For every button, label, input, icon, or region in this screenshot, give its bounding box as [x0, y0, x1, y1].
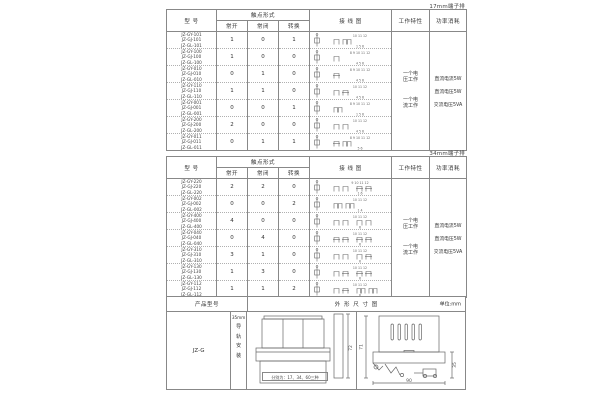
svg-text:10 11 12: 10 11 12 — [353, 85, 367, 89]
model-cell: JZ-GY-110 JZ-GJ-110 JZ-GL-110 — [167, 83, 217, 100]
power-item: 交流电压5VA — [434, 101, 463, 108]
svg-text:8 9 10 11 12: 8 9 10 11 12 — [350, 68, 370, 72]
wiring-diagram-cell: 9 10 11 121 6 — [310, 179, 392, 196]
power-consumption-cell: 直流电流5W直流电压5W交流电压5VA — [430, 32, 467, 151]
no-count-cell: 2 — [217, 117, 248, 134]
model-cell: JZ-GY-130 JZ-GJ-130 JZ-GL-130 — [167, 264, 217, 281]
wiring-diagram: 10 11 126 — [310, 264, 390, 280]
table-row: JZ-GY-220 JZ-GJ-220 JZ-GL-2202209 10 11 … — [167, 179, 467, 196]
working-column-header: 工作特性 — [392, 157, 430, 179]
vent-slot — [391, 324, 393, 340]
page: { "colors": { "line": "#888888", "diagra… — [0, 0, 600, 400]
power-item: 直流电压5W — [435, 88, 462, 95]
co-count-cell: 0 — [279, 179, 310, 196]
outline-header: 外 形 尺 寸 图 单位:mm — [248, 297, 465, 311]
side-view-diagram: 71 90 35 — [357, 312, 465, 388]
nc-count-cell: 0 — [248, 100, 279, 117]
nc-count-cell: 4 — [248, 230, 279, 247]
wiring-diagram-cell: 10 11 126 — [310, 264, 392, 281]
vent-slot — [412, 324, 414, 340]
wiring-diagram-cell: 10 11 126 — [310, 213, 392, 230]
wiring-diagram-cell: 10 11 124 5 6 — [310, 117, 392, 134]
nc-count-cell: 0 — [248, 213, 279, 230]
wiring-diagram-cell: 10 11 126 — [310, 247, 392, 264]
co-count-cell: 1 — [279, 100, 310, 117]
wiring-diagram-cell: 8 9 10 11 125 6 — [310, 134, 392, 151]
wiring-diagram: 10 11 124 5 6 — [310, 117, 390, 133]
spec-table-17mm: 型 号 触点形式 接 线 图 工作特性 功率消耗 常开 常闭 转换 JZ-GY-… — [166, 9, 467, 151]
contact-form-header: 触点形式 — [217, 10, 310, 21]
model-cell: JZ-GY-310 JZ-GJ-310 JZ-GL-310 — [167, 247, 217, 264]
product-table-header: 产品型号 外 形 尺 寸 图 单位:mm — [167, 297, 465, 312]
wiring-diagram: 8 9 10 11 121 5 6 — [310, 100, 390, 116]
co-count-cell: 0 — [279, 213, 310, 230]
svg-text:10 11 12: 10 11 12 — [353, 198, 367, 202]
wiring-diagram-cell: 10 11 124 5 6 — [310, 83, 392, 100]
svg-text:10 11 12: 10 11 12 — [353, 215, 367, 219]
power-item: 交流电压5VA — [434, 248, 463, 255]
side-base-bar — [373, 352, 445, 363]
co-count-cell: 1 — [279, 32, 310, 49]
no-count-cell: 4 — [217, 213, 248, 230]
nc-count-cell: 0 — [248, 49, 279, 66]
wiring-diagram: 10 11 124 5 6 — [310, 83, 390, 99]
wiring-diagram-cell: 8 9 10 11 121 5 6 — [310, 100, 392, 117]
side-view-cell: 71 90 35 — [357, 312, 465, 389]
side-main-body — [379, 316, 439, 352]
co-count-cell: 0 — [279, 230, 310, 247]
front-height-dim: 72 — [348, 345, 354, 351]
nc-count-cell: 1 — [248, 66, 279, 83]
power-item: 直流电流5W — [435, 75, 462, 82]
svg-text:8 9 10 11 12: 8 9 10 11 12 — [350, 51, 370, 55]
model-cell: JZ-GY-002 JZ-GJ-002 JZ-GL-002 — [167, 196, 217, 213]
unit-label: 单位:mm — [440, 301, 461, 308]
product-dimension-table: 产品型号 外 形 尺 寸 图 单位:mm JZ-G 35mm 导轨安装 — [166, 296, 466, 390]
wiring-diagram: 10 11 126 — [310, 230, 390, 246]
working-characteristic-cell: 一个电压工作一个电流工作 — [392, 32, 430, 151]
model-cell: JZ-GY-101 JZ-GJ-101 JZ-GL-101 — [167, 32, 217, 49]
co-count-cell: 0 — [279, 247, 310, 264]
model-cell: JZ-GY-011 JZ-GJ-011 JZ-GL-011 — [167, 134, 217, 151]
working-item: 一个电流工作 — [402, 98, 419, 110]
no-count-cell: 0 — [217, 230, 248, 247]
no-count-cell: 1 — [217, 264, 248, 281]
front-top-lip — [264, 316, 322, 319]
wiring-diagram: 10 11 121 5 6 — [310, 32, 390, 48]
model-cell: JZ-GY-010 JZ-GJ-010 JZ-GL-010 — [167, 66, 217, 83]
wiring-column-header: 接 线 图 — [310, 157, 392, 179]
co-column-header: 转换 — [279, 168, 310, 179]
power-consumption-cell: 直流电流5W直流电压5W交流电压5VA — [430, 179, 467, 298]
no-column-header: 常开 — [217, 21, 248, 32]
svg-text:10 11 12: 10 11 12 — [353, 232, 367, 236]
svg-text:6: 6 — [359, 260, 361, 263]
model-cell: JZ-GY-400 JZ-GJ-400 JZ-GL-400 — [167, 213, 217, 230]
model-cell: JZ-GY-112 JZ-GJ-112 JZ-GL-112 — [167, 281, 217, 298]
nc-count-cell: 2 — [248, 179, 279, 196]
power-column-header: 功率消耗 — [430, 10, 467, 32]
side-tab — [404, 351, 414, 353]
outline-header-label: 外 形 尺 寸 图 — [335, 300, 379, 308]
co-column-header: 转换 — [279, 21, 310, 32]
nc-count-cell: 0 — [248, 32, 279, 49]
nc-column-header: 常闭 — [248, 21, 279, 32]
front-view-cell: 72 分别为：17、34、60三种 — [247, 312, 357, 389]
working-items: 一个电压工作一个电流工作 — [392, 219, 429, 256]
wiring-diagram-cell: 10 11 121 5 6 — [310, 32, 392, 49]
model-cell: JZ-GY-040 JZ-GJ-040 JZ-GL-040 — [167, 230, 217, 247]
svg-text:4 5 6: 4 5 6 — [356, 96, 364, 99]
no-column-header: 常开 — [217, 168, 248, 179]
svg-text:10 11 12: 10 11 12 — [353, 34, 367, 38]
co-count-cell: 2 — [279, 281, 310, 298]
co-count-cell: 0 — [279, 117, 310, 134]
power-column-header: 功率消耗 — [430, 157, 467, 179]
wiring-diagram: 8 9 10 11 124 5 6 — [310, 49, 390, 65]
rail-size-label: 35mm — [231, 315, 246, 320]
wiring-diagram-cell: 8 9 10 11 124 5 6 — [310, 49, 392, 66]
side-width-dim: 90 — [406, 378, 412, 384]
no-count-cell: 0 — [217, 100, 248, 117]
model-cell: JZ-GY-100 JZ-GJ-100 JZ-GL-100 — [167, 49, 217, 66]
power-items: 直流电流5W直流电压5W交流电压5VA — [430, 75, 466, 108]
co-count-cell: 0 — [279, 264, 310, 281]
wiring-diagram: 8 9 10 11 124 5 6 — [310, 66, 390, 82]
svg-text:1 5 6: 1 5 6 — [356, 45, 364, 48]
svg-text:10 11 12: 10 11 12 — [353, 119, 367, 123]
side-height-dim: 71 — [359, 344, 365, 350]
no-count-cell: 0 — [217, 196, 248, 213]
svg-text:6: 6 — [359, 226, 361, 229]
no-count-cell: 2 — [217, 179, 248, 196]
wiring-diagram: 10 11 126 — [310, 247, 390, 263]
nc-count-cell: 1 — [248, 281, 279, 298]
working-item: 一个电压工作 — [402, 72, 419, 84]
no-count-cell: 0 — [217, 66, 248, 83]
svg-text:10 11 12: 10 11 12 — [353, 283, 367, 287]
front-main-body — [262, 319, 324, 348]
svg-text:4 5 6: 4 5 6 — [356, 79, 364, 82]
svg-text:6: 6 — [359, 243, 361, 246]
working-column-header: 工作特性 — [392, 10, 430, 32]
wiring-diagram: 8 9 10 11 125 6 — [310, 134, 390, 150]
product-model-header: 产品型号 — [167, 297, 248, 311]
svg-text:4 5 6: 4 5 6 — [356, 62, 364, 65]
power-item: 直流电压5W — [435, 235, 462, 242]
front-caption: 分别为：17、34、60三种 — [262, 372, 328, 381]
product-table-body: JZ-G 35mm 导轨安装 72 分别为：17、34 — [167, 312, 465, 389]
working-items: 一个电压工作一个电流工作 — [392, 72, 429, 109]
working-characteristic-cell: 一个电压工作一个电流工作 — [392, 179, 430, 298]
side-clamp-dim: 35 — [452, 362, 458, 368]
wiring-diagram-cell: 10 11 126 — [310, 230, 392, 247]
wiring-diagram: 10 11 126 — [310, 213, 390, 229]
model-cell: JZ-GY-001 JZ-GJ-001 JZ-GL-001 — [167, 100, 217, 117]
svg-text:10 11 12: 10 11 12 — [353, 266, 367, 270]
no-count-cell: 0 — [217, 134, 248, 151]
power-item: 直流电流5W — [435, 222, 462, 229]
svg-text:10 11 12: 10 11 12 — [353, 249, 367, 253]
vent-slot — [398, 324, 400, 340]
co-count-cell: 1 — [279, 134, 310, 151]
wiring-diagram-cell: 10 11 126 — [310, 281, 392, 298]
front-flange — [256, 348, 330, 361]
co-count-cell: 0 — [279, 49, 310, 66]
no-count-cell: 1 — [217, 32, 248, 49]
document-content: 17mm端子排 型 号 触点形式 接 线 图 工作特性 功率消耗 常开 常闭 转… — [166, 0, 466, 400]
wiring-diagram: 10 11 121 4 — [310, 196, 390, 212]
no-count-cell: 1 — [217, 49, 248, 66]
table-row: JZ-GY-101 JZ-GJ-101 JZ-GL-10110110 11 12… — [167, 32, 467, 49]
working-item: 一个电压工作 — [402, 219, 419, 231]
no-count-cell: 3 — [217, 247, 248, 264]
svg-text:6: 6 — [359, 277, 361, 280]
nc-count-cell: 0 — [248, 117, 279, 134]
rail-screw — [400, 373, 403, 376]
co-count-cell: 2 — [279, 196, 310, 213]
svg-text:9 10 11 12: 9 10 11 12 — [351, 181, 368, 185]
nc-column-header: 常闭 — [248, 168, 279, 179]
mount-type: 35mm 导轨安装 — [231, 312, 247, 389]
model-column-header: 型 号 — [167, 157, 217, 179]
svg-text:1 4: 1 4 — [357, 209, 362, 212]
vent-slot — [405, 324, 407, 340]
nc-count-cell: 0 — [248, 196, 279, 213]
power-items: 直流电流5W直流电压5W交流电压5VA — [430, 222, 466, 255]
wiring-column-header: 接 线 图 — [310, 10, 392, 32]
svg-text:1 6: 1 6 — [357, 192, 362, 195]
wiring-diagram-cell: 8 9 10 11 124 5 6 — [310, 66, 392, 83]
wiring-diagram: 10 11 126 — [310, 281, 390, 297]
svg-text:1 5 6: 1 5 6 — [356, 113, 364, 116]
wiring-diagram: 9 10 11 121 6 — [310, 179, 390, 195]
svg-text:5 6: 5 6 — [357, 147, 362, 150]
model-column-header: 型 号 — [167, 10, 217, 32]
vent-slot — [419, 324, 421, 340]
nc-count-cell: 1 — [248, 83, 279, 100]
model-cell: JZ-GY-200 JZ-GJ-200 JZ-GL-200 — [167, 117, 217, 134]
nc-count-cell: 1 — [248, 134, 279, 151]
no-count-cell: 1 — [217, 83, 248, 100]
rail-squiggle — [385, 364, 400, 375]
wiring-diagram-cell: 10 11 121 4 — [310, 196, 392, 213]
nc-count-cell: 3 — [248, 264, 279, 281]
no-count-cell: 1 — [217, 281, 248, 298]
product-model-value: JZ-G — [167, 312, 231, 389]
spec-table-34mm: 型 号 触点形式 接 线 图 工作特性 功率消耗 常开 常闭 转换 JZ-GY-… — [166, 156, 467, 298]
svg-text:8 9 10 11 12: 8 9 10 11 12 — [350, 102, 370, 106]
svg-text:4 5 6: 4 5 6 — [356, 130, 364, 133]
model-cell: JZ-GY-220 JZ-GJ-220 JZ-GL-220 — [167, 179, 217, 196]
co-count-cell: 0 — [279, 83, 310, 100]
working-item: 一个电流工作 — [402, 245, 419, 257]
rail-mount-label: 导轨安装 — [236, 323, 242, 361]
nc-count-cell: 1 — [248, 247, 279, 264]
svg-text:8 9 10 11 12: 8 9 10 11 12 — [350, 136, 370, 140]
front-side-profile — [334, 314, 343, 378]
contact-form-header: 触点形式 — [217, 157, 310, 168]
co-count-cell: 0 — [279, 66, 310, 83]
